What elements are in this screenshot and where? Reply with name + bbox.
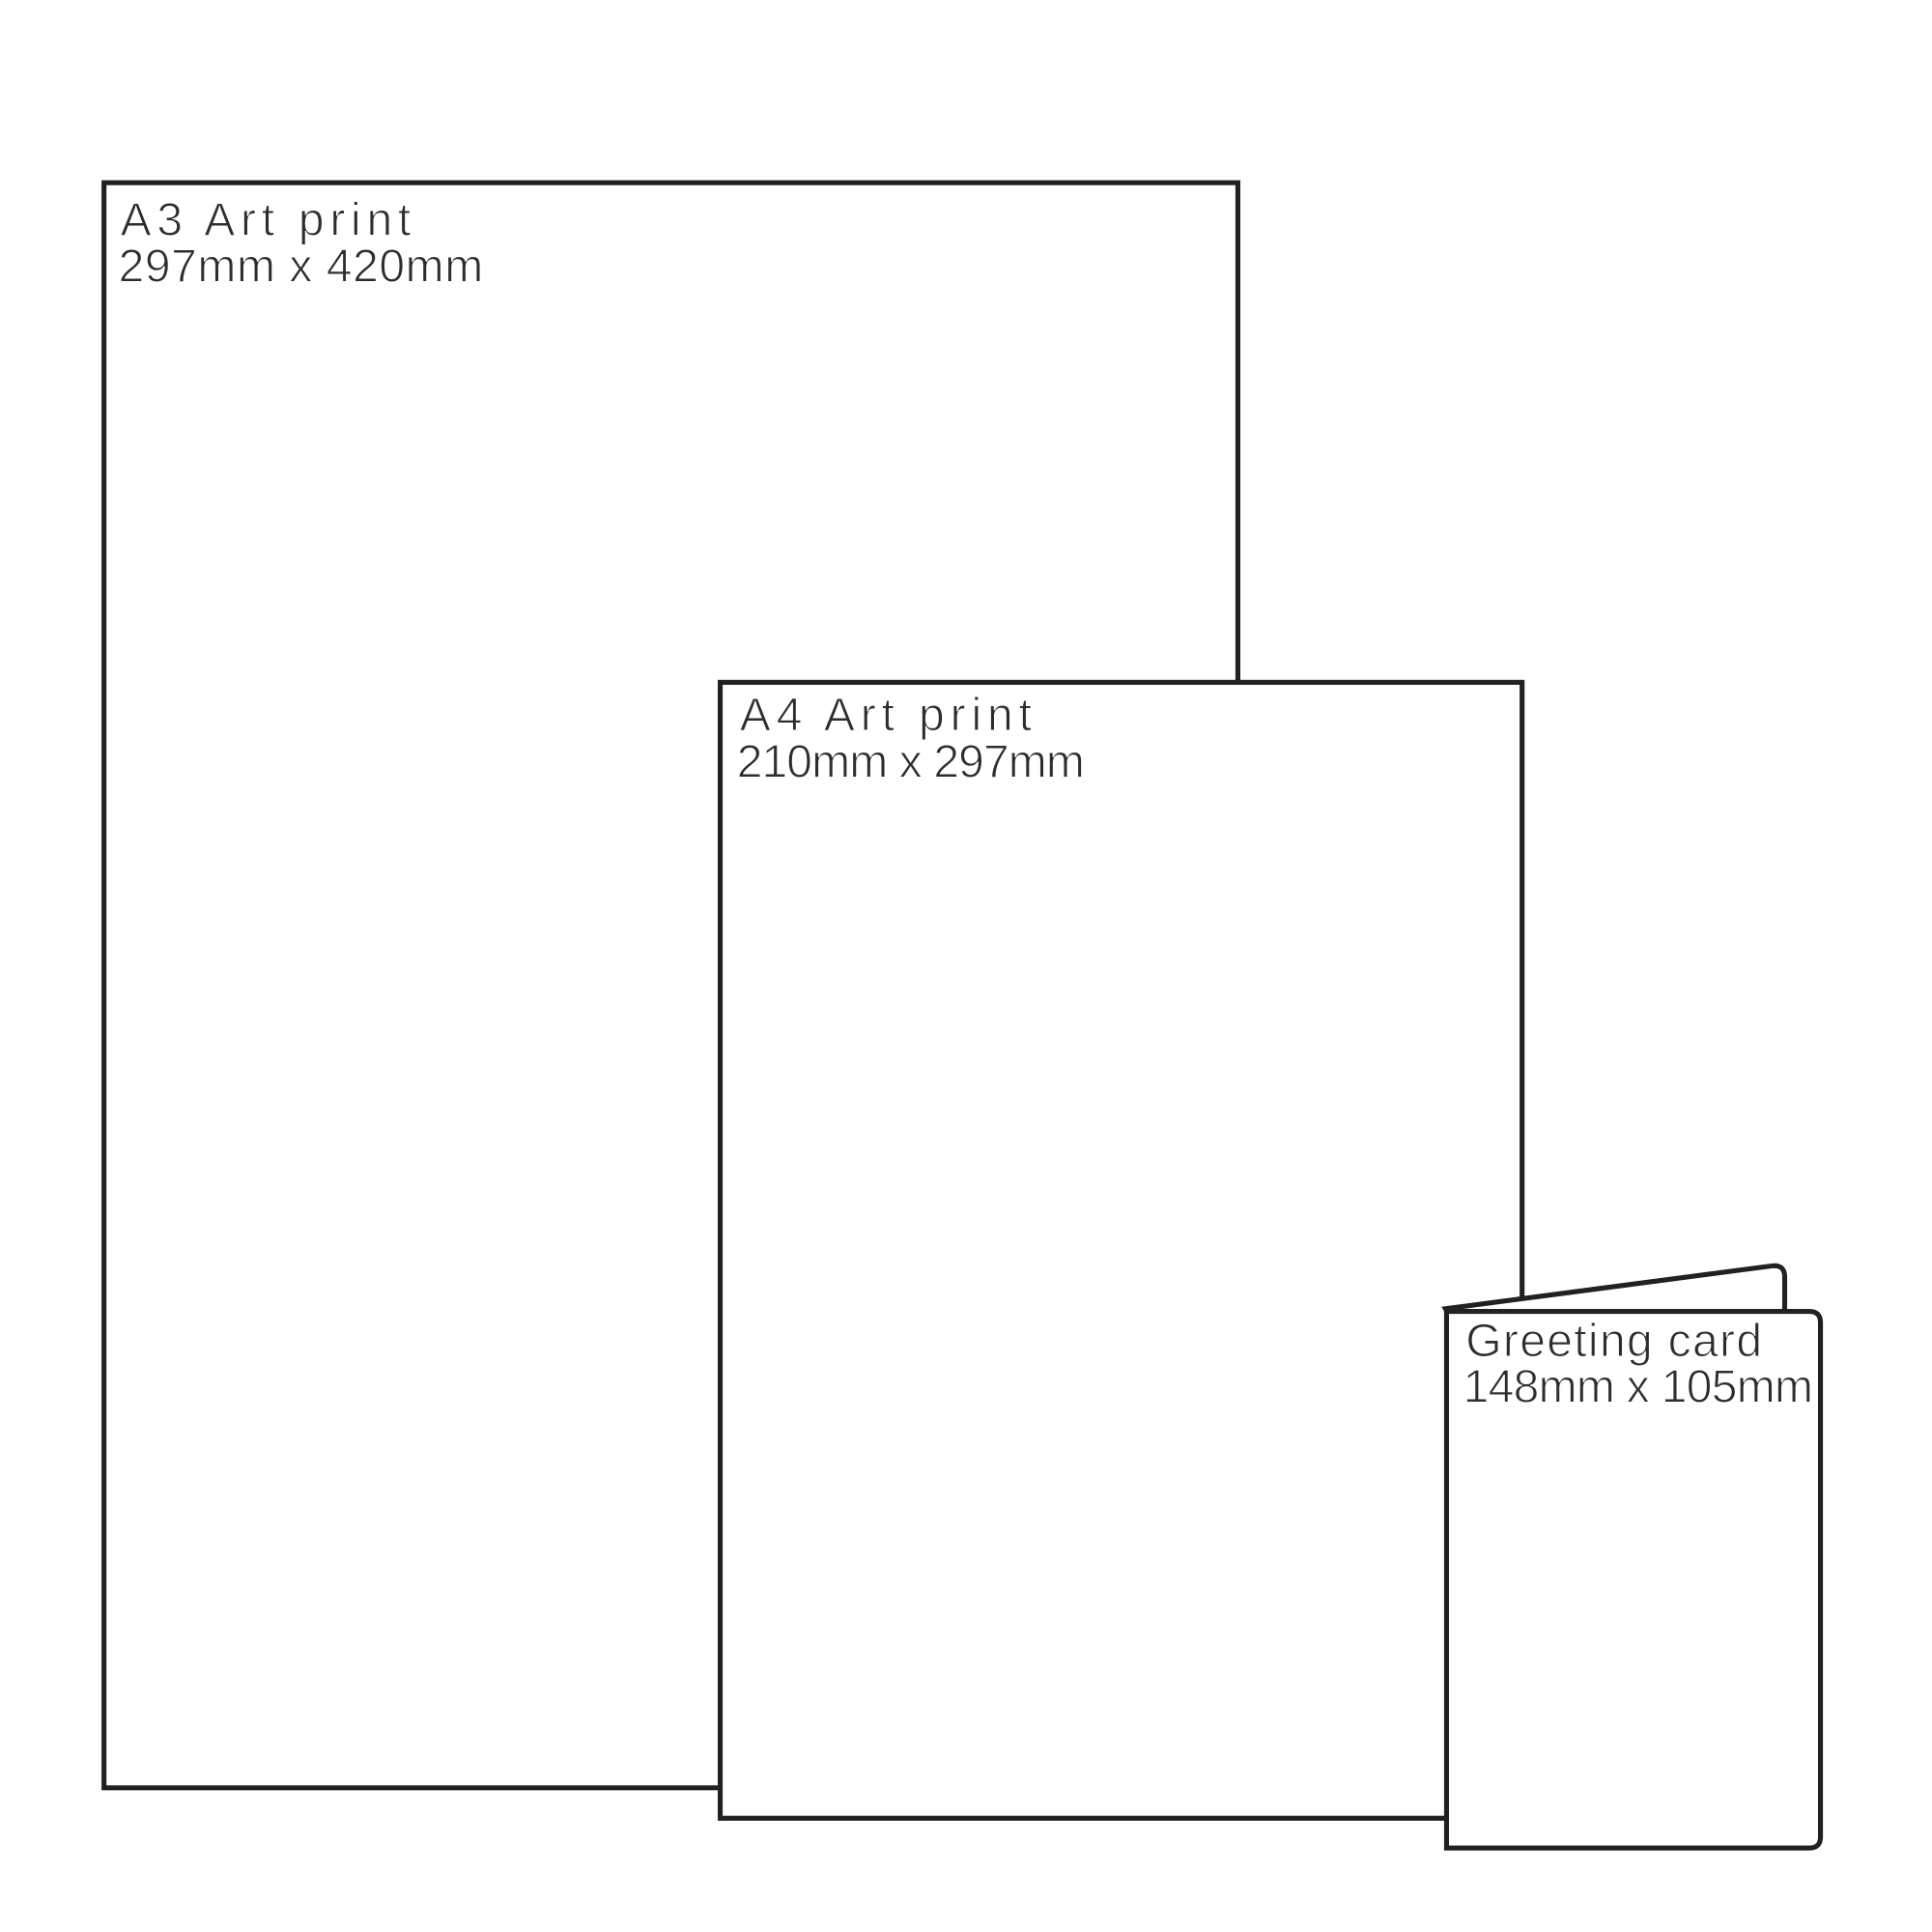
svg-text:148mm x 105mm: 148mm x 105mm [1463,1362,1813,1413]
svg-text:Greeting card: Greeting card [1465,1316,1763,1367]
svg-text:210mm x 297mm: 210mm x 297mm [737,737,1084,788]
svg-text:297mm x 420mm: 297mm x 420mm [119,241,484,293]
svg-text:A4 Art print: A4 Art print [740,690,1037,741]
svg-text:A3 Art print: A3 Art print [121,195,416,246]
